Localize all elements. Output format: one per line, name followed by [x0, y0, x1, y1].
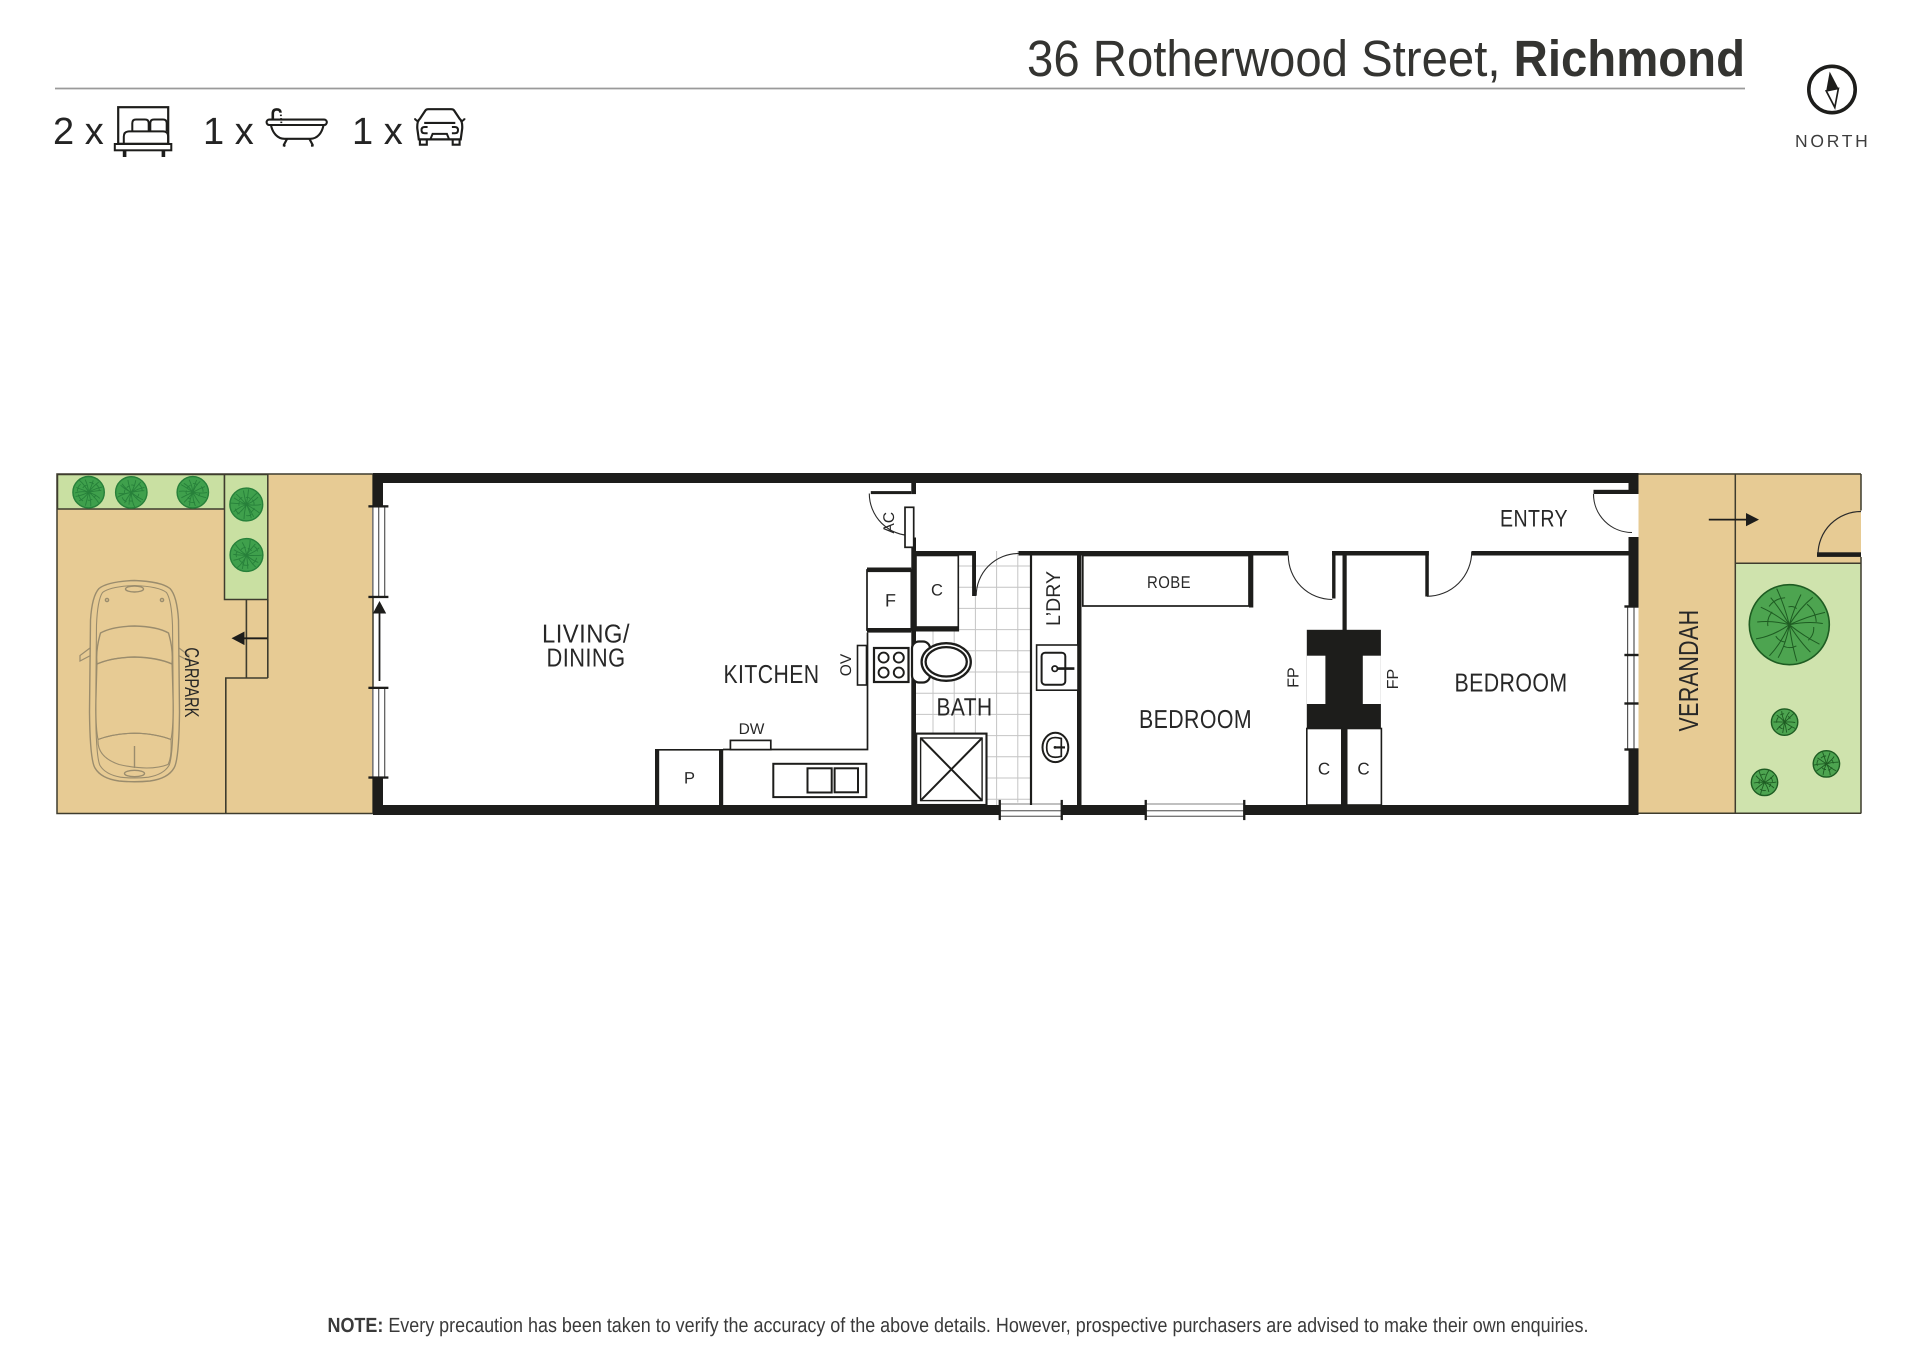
svg-text:FP: FP	[1286, 667, 1303, 687]
svg-text:DINING: DINING	[547, 643, 626, 673]
svg-text:NORTH: NORTH	[1795, 131, 1869, 151]
svg-text:BATH: BATH	[937, 694, 993, 722]
svg-text:KITCHEN: KITCHEN	[724, 659, 820, 689]
svg-text:C: C	[1357, 760, 1369, 779]
svg-text:CARPARK: CARPARK	[180, 647, 202, 717]
svg-text:C: C	[931, 582, 943, 600]
svg-text:BEDROOM: BEDROOM	[1455, 668, 1568, 698]
svg-text:BEDROOM: BEDROOM	[1139, 704, 1252, 734]
svg-text:NOTE: Every precaution has bee: NOTE: Every precaution has been taken to…	[328, 1314, 1589, 1337]
svg-text:AC: AC	[881, 512, 898, 534]
svg-text:1 x: 1 x	[352, 111, 403, 153]
svg-text:L’DRY: L’DRY	[1043, 571, 1065, 626]
svg-text:ENTRY: ENTRY	[1500, 506, 1568, 533]
svg-text:1 x: 1 x	[203, 111, 254, 153]
svg-text:C: C	[1318, 760, 1330, 779]
svg-text:ROBE: ROBE	[1147, 573, 1191, 592]
svg-text:P: P	[684, 770, 695, 788]
svg-text:FP: FP	[1385, 669, 1402, 689]
svg-text:2 x: 2 x	[53, 111, 104, 153]
svg-text:DW: DW	[739, 721, 765, 738]
svg-text:OV: OV	[838, 653, 855, 676]
svg-text:VERANDAH: VERANDAH	[1673, 610, 1704, 732]
svg-text:F: F	[885, 591, 896, 611]
svg-text:36 Rotherwood Street, Richmond: 36 Rotherwood Street, Richmond	[1027, 30, 1745, 87]
